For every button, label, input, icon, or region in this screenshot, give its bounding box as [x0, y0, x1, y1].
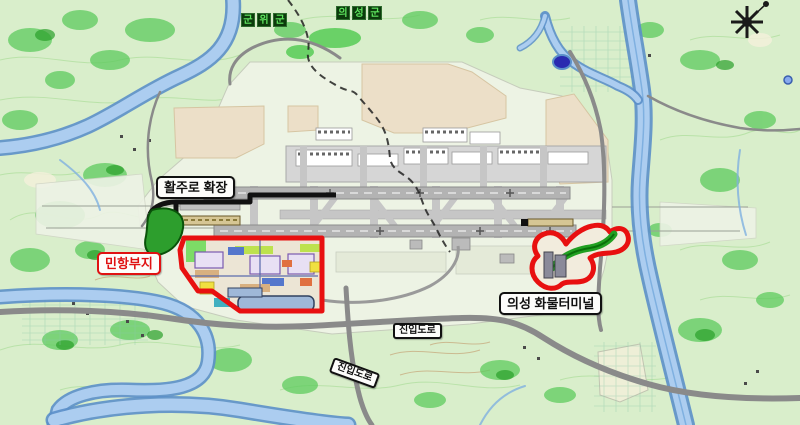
map-image — [0, 0, 800, 425]
west-approach-zone — [36, 174, 150, 250]
airport-plan-map: 군 위 군 의 성 군 활주로 확장 민항부지 의성 화물터미널 진입도로 진입… — [0, 0, 800, 425]
cargo-terminal-zone — [532, 225, 628, 288]
county-label-gunwi: 군 위 군 — [241, 13, 287, 27]
access-road-label-1: 진입도로 — [393, 323, 442, 339]
runway-extension-label: 활주로 확장 — [156, 176, 235, 199]
county-label-char: 위 — [257, 13, 271, 27]
county-label-char: 군 — [368, 6, 382, 20]
civil-site-label: 민항부지 — [97, 252, 161, 275]
county-label-char: 군 — [273, 13, 287, 27]
cargo-terminal-label: 의성 화물터미널 — [499, 292, 602, 315]
county-label-uiseong: 의 성 군 — [336, 6, 382, 20]
county-label-char: 성 — [352, 6, 366, 20]
compass-rose-icon — [731, 2, 769, 39]
county-label-char: 의 — [336, 6, 350, 20]
county-label-char: 군 — [241, 13, 255, 27]
cargo-spur — [528, 219, 573, 226]
east-approach-zone — [660, 202, 756, 246]
pond — [784, 76, 792, 84]
reservoir — [553, 55, 571, 69]
